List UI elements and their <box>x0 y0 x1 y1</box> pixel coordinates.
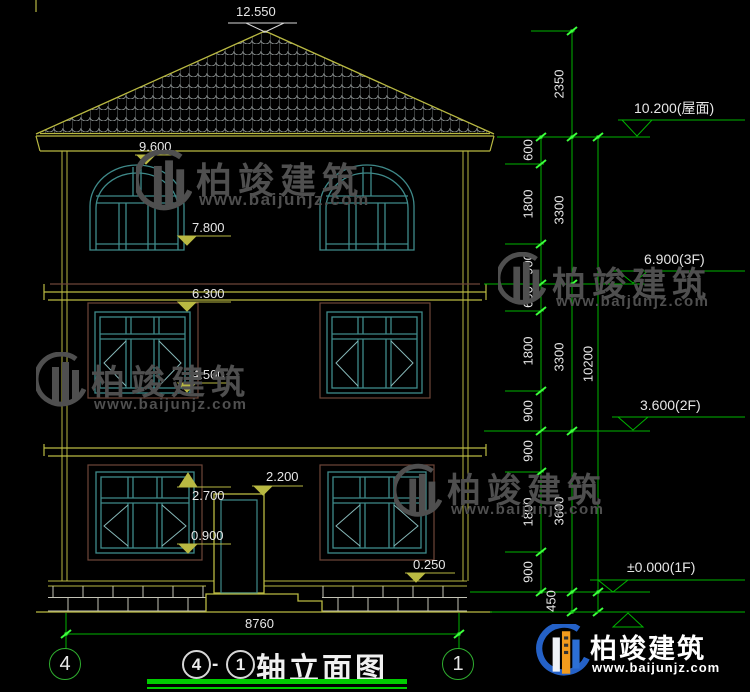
watermark-url: www.baijunjz.com <box>556 293 709 310</box>
watermark-logo-icon <box>136 150 192 220</box>
watermark-logo-icon <box>36 352 86 416</box>
roof <box>36 31 494 134</box>
eaves-fascia <box>36 136 494 151</box>
grid-bubble-4: 4 <box>49 648 81 680</box>
level-1f-right: ±0.000(1F) <box>627 560 695 575</box>
brand-logo-icon <box>536 624 590 682</box>
dim-900-c: 900 <box>521 440 536 462</box>
brick-band-right <box>322 586 467 612</box>
dim-total-width: 8760 <box>245 617 274 631</box>
cornice-3f <box>44 284 486 300</box>
roof-peak-marker <box>228 23 297 32</box>
watermark-logo-icon <box>394 462 442 528</box>
dim-2350: 2350 <box>552 70 567 99</box>
title-axis-start: 4 <box>182 650 211 679</box>
door-stoop-steps <box>206 594 322 612</box>
level-win2-top: 6.300 <box>192 287 225 301</box>
dim-3300-a: 3300 <box>552 196 567 225</box>
level-win3-bottom: 7.800 <box>192 221 225 235</box>
plinth <box>36 581 492 612</box>
title-underline-thin <box>147 687 407 689</box>
level-door-top: 2.200 <box>266 470 299 484</box>
roof-tiles <box>36 31 494 134</box>
level-2f-right: 3.600(2F) <box>640 398 701 413</box>
dim-450: 450 <box>544 590 559 612</box>
elevation-drawing-page: 12.550 9.600 7.800 6.300 4.500 2.700 0.9… <box>0 0 750 692</box>
watermark-url: www.baijunjz.com <box>199 190 370 210</box>
brand-logo-url: www.baijunjz.com <box>592 660 720 675</box>
brick-band-left <box>48 586 206 612</box>
level-win1-bottom: 0.900 <box>191 529 224 543</box>
watermark-url: www.baijunjz.com <box>94 396 247 413</box>
title-separator: - <box>212 654 218 676</box>
level-plinth-top: 0.250 <box>413 558 446 572</box>
dim-total-height: 10200 <box>581 346 596 382</box>
dim-600-a: 600 <box>521 139 536 161</box>
title-axis-end: 1 <box>226 650 255 679</box>
grid-bubble-1: 1 <box>442 648 474 680</box>
dim-3300-b: 3300 <box>552 343 567 372</box>
window-2f-right <box>320 303 430 398</box>
cornice-2f <box>44 444 486 456</box>
dim-900-b: 900 <box>521 400 536 422</box>
level-roof-peak: 12.550 <box>236 5 276 19</box>
level-win1-top: 2.700 <box>192 489 225 503</box>
watermark-url: www.baijunjz.com <box>451 501 604 518</box>
dim-1800-a: 1800 <box>521 190 536 219</box>
dim-1800-b: 1800 <box>521 337 536 366</box>
dim-900-d: 900 <box>521 561 536 583</box>
ground-level-marker <box>613 613 643 627</box>
title-underline-thick <box>147 679 407 684</box>
watermark-logo-icon <box>498 252 546 314</box>
level-roof-right: 10.200(屋面) <box>634 101 714 116</box>
